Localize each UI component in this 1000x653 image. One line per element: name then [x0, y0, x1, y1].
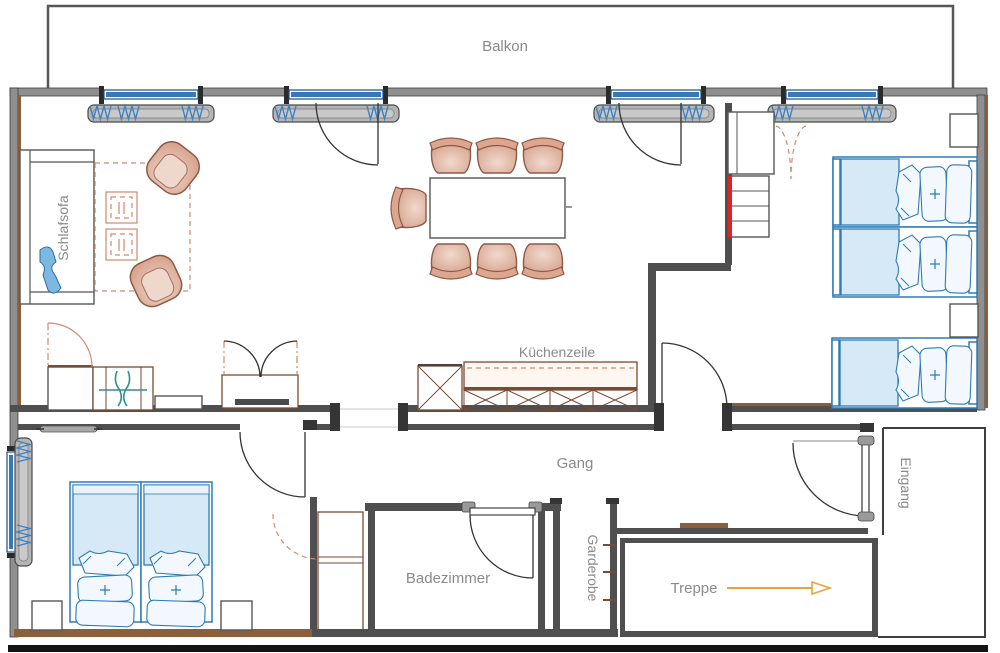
window-3	[594, 86, 714, 165]
stairwell-outline	[878, 428, 985, 637]
balcony: Balkon	[48, 6, 953, 88]
bathroom-label: Badezimmer	[406, 570, 490, 587]
low-shelf	[155, 396, 202, 409]
dresser-red-edge	[728, 176, 732, 237]
bedroom-bottom-left	[7, 426, 252, 630]
sleep-sofa: Schlafsofa	[20, 150, 94, 304]
floor-plan: Balkon	[0, 0, 1000, 653]
dresser	[728, 176, 769, 237]
kitchenette-label: Küchenzeile	[519, 344, 595, 360]
window-2	[273, 86, 399, 165]
tv-cabinet	[93, 367, 153, 410]
bedroom1-door	[240, 432, 305, 497]
dining-chair	[430, 244, 472, 279]
dining-table	[430, 178, 565, 238]
arrow-head-icon	[812, 582, 830, 594]
kitchenette: Küchenzeile	[418, 344, 637, 410]
nightstand	[950, 304, 978, 337]
dining-chair	[476, 138, 518, 173]
double-bed	[70, 482, 212, 627]
dining-chair	[476, 244, 518, 279]
dining-chair	[522, 244, 564, 279]
window-4	[768, 86, 896, 122]
bed-single	[832, 338, 977, 408]
stairs-label: Treppe	[671, 580, 718, 597]
side-table-1	[106, 192, 137, 223]
kitchen-counter	[464, 362, 637, 410]
stairs: Treppe	[671, 580, 830, 597]
stairs-arrow	[727, 582, 830, 594]
floor-plan-svg: Balkon	[0, 0, 1000, 653]
right-wall-wood-line	[985, 95, 988, 408]
entrance-door	[793, 436, 874, 521]
sleep-sofa-label: Schlafsofa	[55, 195, 71, 261]
dining-chair	[522, 138, 564, 173]
dining-area	[391, 138, 572, 279]
closet	[273, 512, 363, 630]
dining-chair	[391, 187, 426, 229]
nightstand	[950, 114, 978, 147]
hallway-label: Gang	[557, 455, 594, 472]
window-1	[88, 86, 214, 122]
doormat	[680, 523, 728, 528]
window-left	[7, 438, 32, 566]
dining-chair	[430, 138, 472, 173]
side-table-2	[106, 229, 137, 260]
cupboard	[48, 323, 93, 410]
bedroom-right	[728, 112, 978, 408]
balcony-label: Balkon	[482, 38, 528, 55]
bed-twin-1	[833, 157, 977, 227]
nightstand	[32, 601, 62, 630]
bedroom2-door	[662, 343, 727, 408]
soundbar	[235, 399, 289, 405]
radiator	[36, 426, 102, 432]
living-room: Schlafsofa	[20, 136, 298, 410]
bed-twin-2	[833, 227, 977, 297]
entrance-label: Eingang	[898, 457, 914, 508]
bathroom-door	[462, 502, 542, 578]
armchair-1	[141, 136, 206, 201]
cloakroom-label: Garderobe	[585, 535, 601, 602]
kitchen-unit-left	[418, 365, 462, 410]
nightstand	[221, 601, 252, 630]
double-door-cabinet	[222, 341, 298, 408]
bottom-border	[8, 645, 988, 652]
